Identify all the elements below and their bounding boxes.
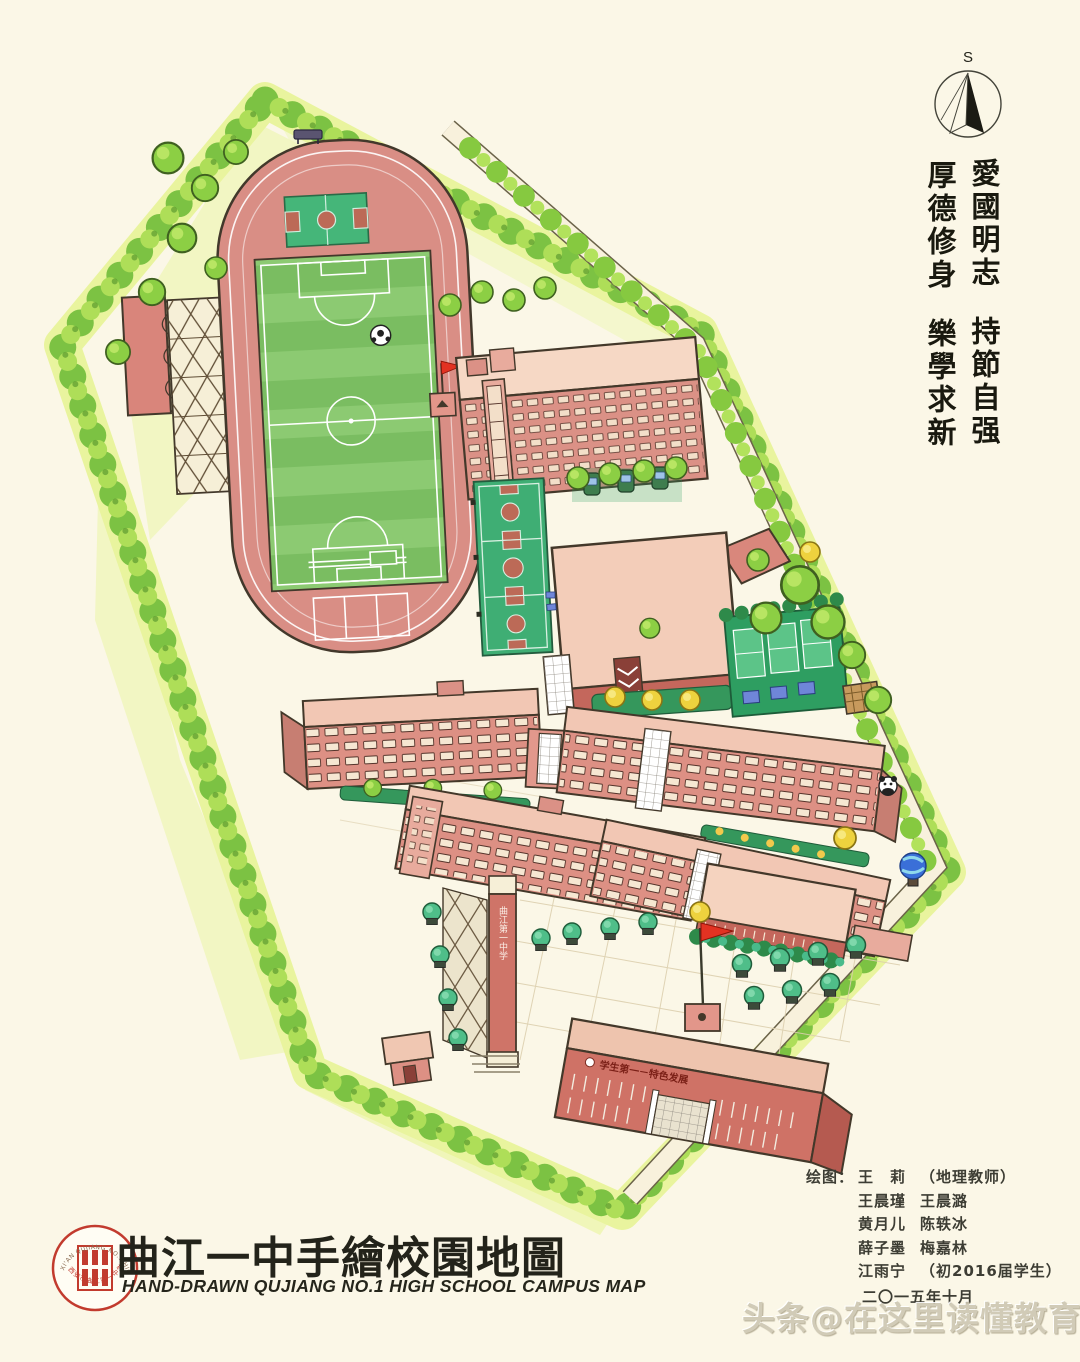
guard-hut — [382, 1032, 436, 1086]
plaza-tree-row-west — [532, 913, 657, 951]
main-gate-building: 学生第一－特色发展 — [554, 1019, 860, 1174]
basketball-courts — [470, 478, 553, 656]
soccer-ball — [370, 325, 391, 346]
motto-column-left: 厚德修身樂學求新 — [924, 160, 956, 450]
campus-map-drawing: 曲江第一中学 — [0, 0, 1080, 1362]
classroom-building-1 — [280, 677, 542, 790]
map-subtitle: HAND-DRAWN QUJIANG NO.1 HIGH SCHOOL CAMP… — [122, 1276, 646, 1297]
grandstand — [122, 293, 229, 497]
motto-phrase: 愛國明志 — [967, 158, 1001, 290]
credits-label: 绘图： — [806, 1166, 858, 1190]
motto-phrase: 持節自强 — [967, 316, 1001, 448]
gate-pergola — [423, 888, 487, 1058]
credit-name: 王晨潞 — [910, 1190, 1066, 1214]
credit-name: 黄月儿 — [858, 1213, 910, 1237]
credit-name: 陈轶冰 — [910, 1213, 1066, 1237]
motto-column-right: 愛國明志持節自强 — [968, 158, 1000, 448]
blue-bench — [546, 592, 555, 598]
motto-phrase: 樂學求新 — [923, 318, 957, 450]
credit-name: 薛子墨 — [858, 1237, 910, 1261]
gate-tower-label: 曲江第一中学 — [497, 906, 508, 960]
credits-table: 绘图： 王 莉 （地理教师） 王晨瑾 王晨潞 黄月儿 陈轶冰 薛子墨 梅嘉林 江… — [806, 1166, 1066, 1284]
credit-name: 梅嘉林 — [910, 1237, 1066, 1261]
credit-name: 王 莉 — [858, 1166, 910, 1190]
infield-basketball-court — [284, 193, 369, 247]
credit-name: 王晨瑾 — [858, 1190, 910, 1214]
compass-south-label: S — [963, 49, 973, 66]
credit-note: （地理教师） — [910, 1166, 1066, 1190]
athletic-track — [212, 134, 488, 658]
credits-block: 绘图： 王 莉 （地理教师） 王晨瑾 王晨潞 黄月儿 陈轶冰 薛子墨 梅嘉林 江… — [806, 1166, 1066, 1309]
soccer-field — [255, 251, 448, 592]
motto-phrase: 厚德修身 — [923, 160, 957, 292]
credit-name: 江雨宁 — [858, 1260, 910, 1284]
credit-note: （初2016届学生） — [910, 1260, 1066, 1284]
watermark: 头条@在这里读懂教育 — [742, 1292, 1080, 1340]
panda-sculpture — [879, 776, 897, 796]
campus-map-poster: 曲江第一中学 — [0, 0, 1080, 1362]
compass: S — [935, 49, 1001, 137]
